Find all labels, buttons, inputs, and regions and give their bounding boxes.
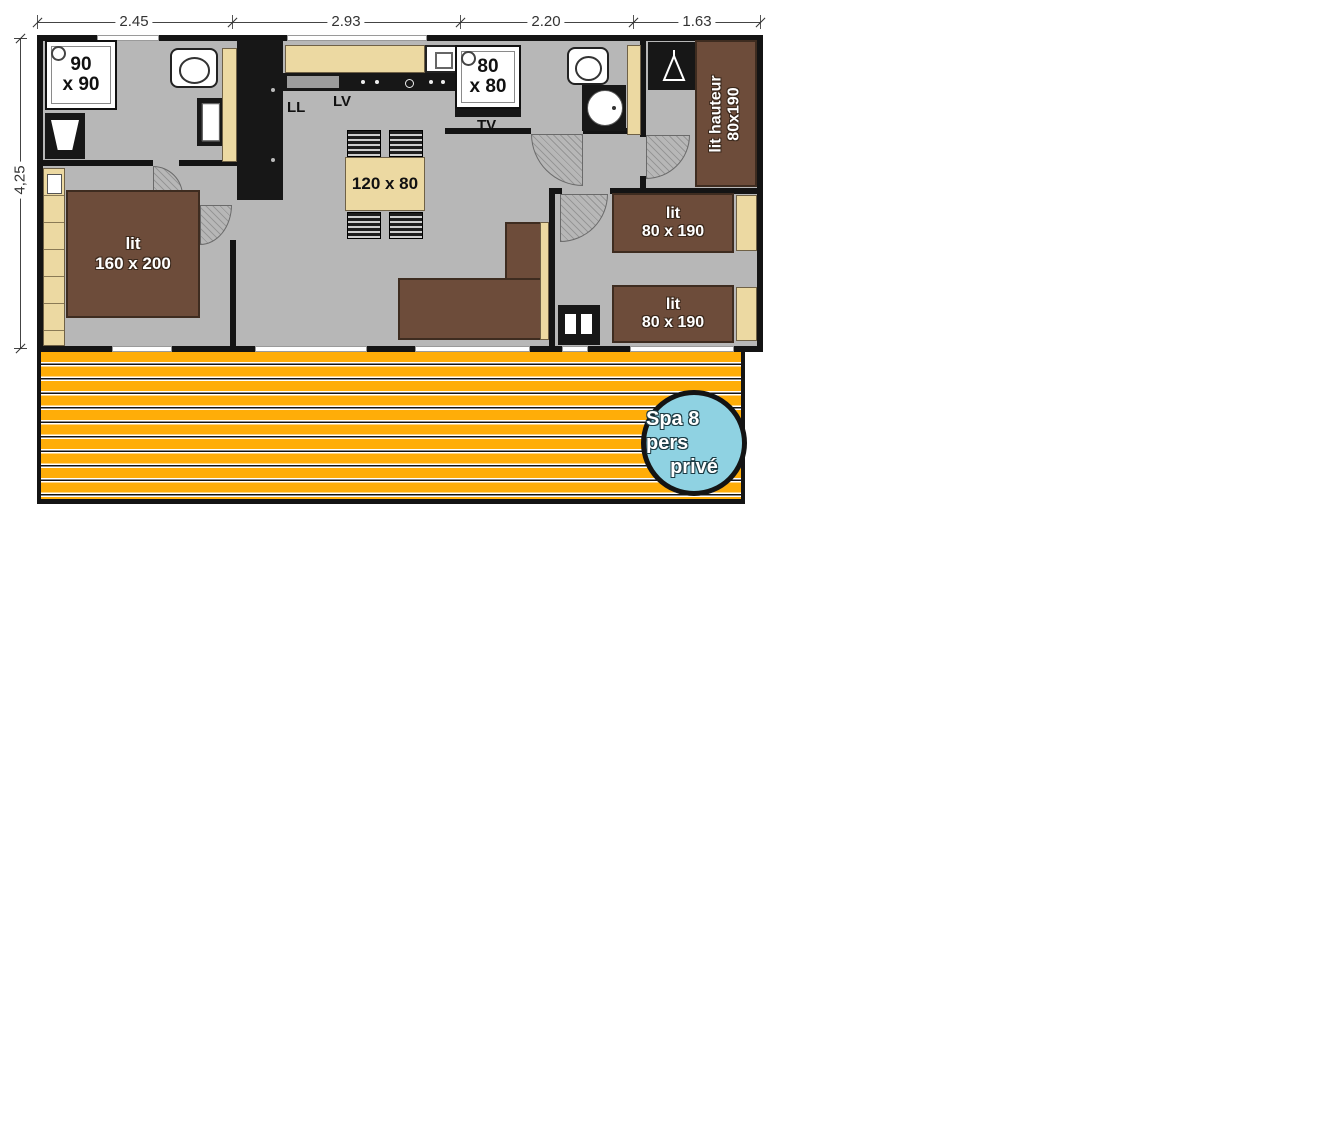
fridge-column: [237, 40, 283, 200]
chair: [389, 212, 423, 239]
washbasin-1: [197, 98, 225, 146]
bathroom1-cabinet: [222, 48, 237, 162]
bed-raised-label-1: lit hauteur: [708, 75, 726, 152]
burner-icon: [405, 79, 414, 88]
wardrobe-cabin: [648, 42, 700, 90]
table-size-label: 120 x 80: [352, 174, 418, 194]
wall-right: [757, 35, 763, 352]
handle-icon: [271, 88, 275, 92]
window-top-kitchen: [287, 35, 427, 41]
bed-raised: lit hauteur 80x190: [695, 40, 757, 187]
knob-icon: [361, 80, 365, 84]
bathroom2-cabinet: [627, 45, 641, 135]
toilet-bowl-icon: [575, 56, 603, 81]
dim-height: 4,25: [12, 161, 29, 198]
round-basin-icon: [587, 90, 623, 126]
sink-bowl-icon: [435, 52, 453, 69]
bed-shelf-2: [736, 287, 757, 341]
spa-label-1: Spa 8 pers: [646, 407, 742, 455]
door-arc-cabin: [646, 135, 690, 179]
dresser-unit: [558, 305, 600, 345]
spa-circle: Spa 8 pers privé: [641, 390, 747, 496]
washbasin-2: [582, 85, 626, 131]
door-arc-bedroom3: [560, 194, 608, 242]
handle-icon: [271, 158, 275, 162]
wall-bathroom1-a: [37, 160, 153, 166]
dresser-door-icon: [581, 314, 592, 334]
nightstand-icon: [47, 174, 62, 194]
bed-master-label-1: lit: [125, 234, 140, 254]
door-arc-bathroom2: [531, 134, 583, 186]
bed-single-label-1: lit: [666, 205, 680, 223]
bed-single-1: lit 80 x 190: [612, 193, 734, 253]
bed-single-label-2: 80 x 190: [642, 314, 704, 332]
shower-head-icon: [51, 46, 66, 61]
shower-90-label-1: 90: [70, 55, 91, 75]
drain-icon: [612, 106, 616, 110]
toilet-1: [170, 48, 218, 88]
bed-single-label-1: lit: [666, 296, 680, 314]
dim-width-4: 1.63: [678, 13, 715, 30]
chair: [347, 130, 381, 157]
knob-icon: [441, 80, 445, 84]
washer-label: LL: [287, 99, 305, 116]
hanger-icon: [657, 47, 691, 85]
washbasin-icon: [51, 120, 79, 150]
sofa-seat: [398, 278, 543, 340]
shower-tray-90: 90 x 90: [45, 40, 117, 110]
sofa-console: [540, 222, 549, 340]
kitchen-drawer-icon: [287, 76, 339, 88]
shower-80-label-2: x 80: [470, 77, 507, 97]
tv-wall-unit: [455, 109, 521, 117]
bed-master: lit 160 x 200: [66, 190, 200, 318]
wall-bedroom3-left: [549, 188, 555, 346]
kitchen-cooktop-strip: [283, 73, 459, 91]
washbasin-rect-icon: [202, 103, 220, 141]
building-plan: 90 x 90 LL: [37, 35, 763, 352]
vanity-unit: [45, 113, 85, 159]
toilet-2: [567, 47, 609, 85]
chair: [347, 212, 381, 239]
shower-90-label-2: x 90: [63, 75, 100, 95]
bed-master-label-2: 160 x 200: [95, 254, 171, 274]
kitchen-counter: [285, 45, 425, 73]
dishwasher-label: LV: [333, 93, 351, 110]
dresser-door-icon: [565, 314, 576, 334]
dim-width-3: 2.20: [527, 13, 564, 30]
shower-tray-80: 80 x 80: [455, 45, 521, 109]
bed-single-label-2: 80 x 190: [642, 223, 704, 241]
deck-terrace: Spa 8 pers privé: [37, 352, 745, 504]
door-arc-master: [200, 205, 232, 245]
wardrobe-master: [43, 168, 65, 346]
shower-80-label-1: 80: [477, 57, 498, 77]
dim-width-1: 2.45: [115, 13, 152, 30]
chair: [389, 130, 423, 157]
shower-head-icon: [461, 51, 476, 66]
bed-raised-label-2: 80x190: [726, 75, 744, 152]
bed-shelf-1: [736, 195, 757, 251]
knob-icon: [429, 80, 433, 84]
spa-label-2: privé: [670, 455, 718, 479]
toilet-bowl-icon: [179, 57, 210, 83]
wall-bedroom1: [230, 240, 236, 346]
dim-width-2: 2.93: [327, 13, 364, 30]
dining-table: 120 x 80: [345, 157, 425, 211]
knob-icon: [375, 80, 379, 84]
floorplan-canvas: 2.45 2.93 2.20 1.63 4,25: [0, 0, 1336, 1136]
tv-label: TV: [477, 117, 496, 134]
sofa-chaise: [505, 222, 543, 280]
bed-single-2: lit 80 x 190: [612, 285, 734, 343]
